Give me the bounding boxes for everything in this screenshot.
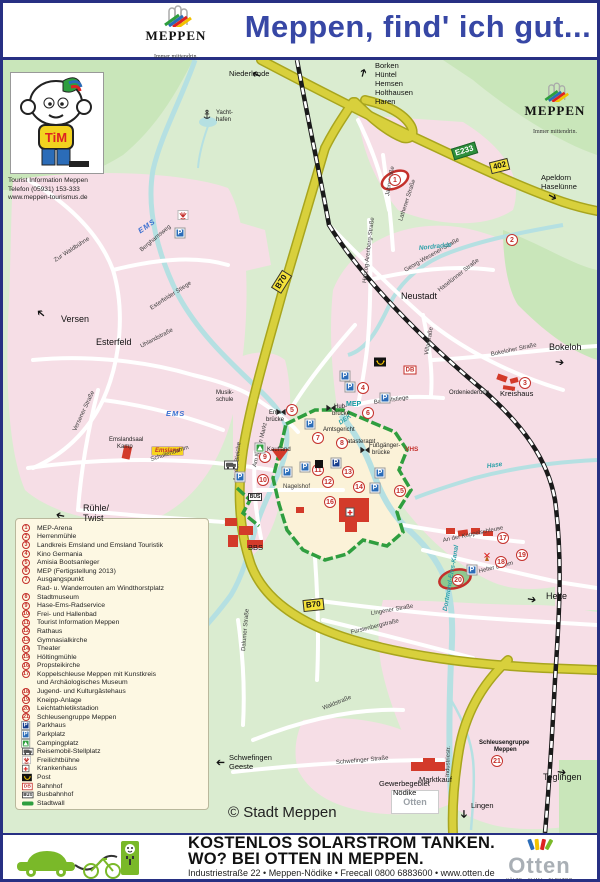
poi-marker-13[interactable]: 13 xyxy=(342,466,354,478)
legend-number-13: 13 xyxy=(22,636,30,644)
legend-item-17: 17Koppelschleuse Meppen mit Kunstkreis xyxy=(22,670,204,679)
legend-item-7: 7Ausgangspunkt xyxy=(22,576,204,585)
legend-icon-cell: 5 xyxy=(22,559,37,567)
tourist-info-line1: Tourist Information Meppen xyxy=(8,177,128,186)
map-logo-text: MEPPEN xyxy=(525,103,586,118)
map-logo-tagline: Immer mittendrin. xyxy=(533,129,577,135)
legend-icon-cell: 14 xyxy=(22,645,37,653)
legend-symbol-post: Post xyxy=(22,773,204,782)
legend-icon-cell: 3 xyxy=(22,541,37,549)
legend-icon-cell: 9 xyxy=(22,602,37,610)
map-label-hasel-nne: Haselünne xyxy=(541,183,577,191)
parkplatz-icon: P xyxy=(301,463,310,472)
map-legend: 1MEP-Arena2Herrenmühle3Landkreis Emsland… xyxy=(15,518,209,810)
map-label-meppen: Meppen xyxy=(494,747,517,753)
legend-number-20: 20 xyxy=(22,705,30,713)
map-label-bbs: BBS xyxy=(248,544,263,552)
meppen-city-map-page: MEPPEN Immer mittendrin. Meppen, find' i… xyxy=(0,0,600,882)
map-label-schleusengruppe: Schleusengruppe xyxy=(479,740,529,746)
legend-icon-cell: 12 xyxy=(22,627,37,635)
map-label-br-cke: brücke xyxy=(372,450,390,456)
poi-marker-18[interactable]: 18 xyxy=(495,556,507,568)
direction-arrow: ➔ xyxy=(556,767,567,779)
legend-item-19: 19Kneipp-Anlage xyxy=(22,696,204,705)
poi-marker-17[interactable]: 17 xyxy=(497,532,509,544)
legend-icon-cell: BUS xyxy=(22,791,37,799)
legend-item-21: 21Schleusengruppe Meppen xyxy=(22,713,204,722)
poi-marker-8[interactable]: 8 xyxy=(336,437,348,449)
poi-marker-7[interactable]: 7 xyxy=(312,432,324,444)
map-label-emslandsaal: Emslandsaal xyxy=(109,437,143,443)
bridge-icon xyxy=(276,408,287,416)
footer-text: KOSTENLOS SOLARSTROM TANKEN. WO? BEI OTT… xyxy=(188,836,495,878)
parkplatz-icon: P xyxy=(306,420,315,429)
legend-icon-cell: 10 xyxy=(22,610,37,618)
bridge-icon xyxy=(360,446,371,454)
legend-item-13: 13Gymnasialkirche xyxy=(22,636,204,645)
map-label-neustadt: Neustadt xyxy=(401,292,437,301)
map-label-bokeloh: Bokeloh xyxy=(549,343,582,352)
legend-icon-cell: 6 xyxy=(22,567,37,575)
poi-marker-3[interactable]: 3 xyxy=(519,377,531,389)
openair-icon xyxy=(178,210,189,220)
legend-item-3: 3Landkreis Emsland und Emsland Touristik xyxy=(22,541,204,550)
map-label-esterfeld: Esterfeld xyxy=(96,338,132,347)
road-badge-b70: B70 xyxy=(302,598,324,612)
map-label-hafen: hafen xyxy=(216,117,231,123)
map-label-versen: Versen xyxy=(61,315,89,324)
legend-label: Höltingmühle xyxy=(37,654,77,661)
map-label-br-cke: brücke xyxy=(266,417,284,423)
legend-icon-cell: 2 xyxy=(22,533,37,541)
tourist-info-line3[interactable]: www.meppen-tourismus.de xyxy=(8,194,128,203)
parkplatz-icon: P xyxy=(381,394,390,403)
poi-marker-2[interactable]: 2 xyxy=(506,234,518,246)
legend-symbol-parkplatz: PParkplatz xyxy=(22,730,204,739)
legend-number-8: 8 xyxy=(22,593,30,601)
map-label-n-dike: Nödike xyxy=(393,789,416,797)
legend-label: Tourist Information Meppen xyxy=(37,619,119,626)
legend-icon-cell: DB xyxy=(22,782,37,791)
legend-number-19: 19 xyxy=(22,696,30,704)
city-map: TiM Tourist Information Meppen Telefon (… xyxy=(3,60,597,835)
map-meppen-logo: MEPPEN Immer mittendrin. xyxy=(515,82,595,138)
meppen-hand-icon xyxy=(159,5,193,27)
bus-icon: BUS xyxy=(248,493,262,501)
legend-number-1: 1 xyxy=(22,524,30,532)
legend-label: MEP (Fertigstellung 2013) xyxy=(37,568,116,575)
legend-label: Schleusengruppe Meppen xyxy=(37,714,116,721)
legend-item-12: 12Rathaus xyxy=(22,627,204,636)
map-label-h-ntel: Hüntel xyxy=(375,71,397,79)
legend-label: Reisemobil-Stellplatz xyxy=(37,748,100,755)
legend-item-5: 5Amisia Bootsanleger xyxy=(22,558,204,567)
legend-label: Landkreis Emsland und Emsland Touristik xyxy=(37,542,163,549)
legend-number-4: 4 xyxy=(22,550,30,558)
legend-number-7: 7 xyxy=(22,576,30,584)
legend-label: Parkhaus xyxy=(37,722,66,729)
map-label-kaufland: Kaufland xyxy=(267,447,291,453)
parkplatz-icon: P xyxy=(341,372,350,381)
legend-item-7-cont: Rad- u. Wanderrouten am Windthorstplatz xyxy=(22,584,204,593)
legend-symbol-bus: BUSBusbahnhof xyxy=(22,790,204,799)
electric-car-icon xyxy=(9,837,179,879)
legend-label: Stadtwall xyxy=(37,800,65,807)
poi-marker-5[interactable]: 5 xyxy=(286,404,298,416)
legend-label: Campingplatz xyxy=(37,740,79,747)
legend-label: MEP-Arena xyxy=(37,525,72,532)
parkhaus-icon: P xyxy=(22,722,29,729)
legend-icon-cell: 7 xyxy=(22,576,37,584)
map-label-marktkauf: Marktkauf xyxy=(419,776,452,784)
hospital-icon xyxy=(22,765,29,772)
map-label-haren: Haren xyxy=(375,98,395,106)
direction-arrow: ➔ xyxy=(526,594,537,606)
camping-icon xyxy=(256,444,265,453)
legend-label: Stadtmuseum xyxy=(37,594,79,601)
legend-item-16: 16Propsteikirche xyxy=(22,662,204,671)
wall-icon xyxy=(22,801,33,805)
map-label-industriestr-: Industriestr. xyxy=(445,746,452,777)
legend-icon-cell: 8 xyxy=(22,593,37,601)
legend-symbol-parkhaus: PParkhaus xyxy=(22,722,204,731)
page-title: Meppen, find' ich gut... xyxy=(238,9,598,45)
legend-icon-cell: 21 xyxy=(22,713,37,721)
db-icon: DB xyxy=(404,366,417,375)
legend-icon-cell: 15 xyxy=(22,653,37,661)
map-label-helte: Helte xyxy=(546,592,567,601)
poi-marker-19[interactable]: 19 xyxy=(516,549,528,561)
hospital-icon xyxy=(346,508,355,517)
tim-character-icon: TiM xyxy=(11,73,101,171)
legend-number-5: 5 xyxy=(22,559,30,567)
parkplatz-icon: P xyxy=(236,473,245,482)
legend-label: Post xyxy=(37,774,51,781)
map-label-fu-g-nger-: Fußgänger- xyxy=(369,443,400,449)
legend-number-15: 15 xyxy=(22,653,30,661)
legend-label: Theater xyxy=(37,645,60,652)
tourist-info-text: Tourist Information Meppen Telefon (0593… xyxy=(8,177,128,203)
legend-item-11: 11Tourist Information Meppen xyxy=(22,619,204,628)
direction-arrow: ➔ xyxy=(458,810,469,819)
legend-icon-cell: 19 xyxy=(22,696,37,704)
legend-number-12: 12 xyxy=(22,627,30,635)
mill-icon xyxy=(482,552,492,562)
legend-label: Krankenhaus xyxy=(37,765,77,772)
legend-item-18: 18Jugend- und Kulturgästehaus xyxy=(22,687,204,696)
map-label-amtsgericht: Amtsgericht xyxy=(323,427,355,433)
legend-item-8: 8Stadtmuseum xyxy=(22,593,204,602)
legend-label: Ausgangspunkt xyxy=(37,576,84,583)
post-icon xyxy=(374,358,386,367)
otten-brand-tagline: KÄLTE · KLIMA · ELEKTRO xyxy=(492,877,587,882)
parkplatz-icon: P xyxy=(371,484,380,493)
footer-address[interactable]: Industriestraße 22 • Meppen-Nödike • Fre… xyxy=(188,868,495,878)
parkplatz-icon: P xyxy=(283,468,292,477)
legend-label: Busbahnhof xyxy=(37,791,73,798)
legend-item-10: 10Frei- und Hallenbad xyxy=(22,610,204,619)
legend-item-15: 15Höltingmühle xyxy=(22,653,204,662)
legend-label: Parkplatz xyxy=(37,731,65,738)
legend-label: Rathaus xyxy=(37,628,62,635)
map-label-ems: EMS xyxy=(166,410,185,418)
meppen-hand-icon xyxy=(540,82,570,102)
parkplatz-icon: P xyxy=(22,731,29,738)
legend-number-10: 10 xyxy=(22,610,30,618)
map-label-hemsen: Hemsen xyxy=(375,80,403,88)
poi-marker-14[interactable]: 14 xyxy=(353,481,365,493)
map-label-r-hle-: Rühle/ xyxy=(83,504,109,513)
meppen-logo: MEPPEN Immer mittendrin. xyxy=(131,5,221,63)
legend-symbol-rv: Reisemobil-Stellplatz xyxy=(22,747,204,756)
header: MEPPEN Immer mittendrin. Meppen, find' i… xyxy=(3,3,597,60)
legend-icon-cell: 17 xyxy=(22,670,37,678)
legend-label: Propsteikirche xyxy=(37,662,80,669)
poi-marker-10[interactable]: 10 xyxy=(257,474,269,486)
legend-label: Koppelschleuse Meppen mit Kunstkreis xyxy=(37,671,156,678)
map-label-mep: MEP xyxy=(346,401,361,408)
legend-label: Kneipp-Anlage xyxy=(37,697,82,704)
legend-icon-cell: 13 xyxy=(22,636,37,644)
legend-icon-cell: 11 xyxy=(22,619,37,627)
legend-icon-cell: 20 xyxy=(22,705,37,713)
meppen-logo-text: MEPPEN xyxy=(146,28,207,43)
anchor-icon xyxy=(203,110,212,121)
legend-label: Gymnasialkirche xyxy=(37,637,87,644)
legend-icon-cell: 18 xyxy=(22,688,37,696)
map-label-kreishaus: Kreishaus xyxy=(500,390,533,398)
legend-label: Bahnhof xyxy=(37,783,62,790)
civic-icon xyxy=(315,460,323,468)
tourist-info-line2: Telefon (05931) 153-333 xyxy=(8,186,128,195)
bus-icon: BUS xyxy=(22,791,33,798)
legend-item-20: 20Leichtathletikstadion xyxy=(22,704,204,713)
map-label-yacht-: Yacht- xyxy=(216,110,233,116)
poi-marker-6[interactable]: 6 xyxy=(362,407,374,419)
poi-marker-4[interactable]: 4 xyxy=(357,382,369,394)
map-label-borken: Borken xyxy=(375,62,399,70)
legend-item-9: 9Hase-Ems-Radservice xyxy=(22,601,204,610)
legend-item-14: 14Theater xyxy=(22,644,204,653)
legend-label: Herrenmühle xyxy=(37,533,76,540)
map-label-apeldorn: Apeldorn xyxy=(541,174,571,182)
openair-icon xyxy=(22,756,31,764)
direction-arrow: ➔ xyxy=(216,756,225,767)
legend-label: und Archäologisches Museum xyxy=(37,679,128,686)
post-icon xyxy=(22,774,32,781)
otten-logo: Otten KÄLTE · KLIMA · ELEKTRO xyxy=(492,837,587,882)
legend-icon-cell xyxy=(22,801,37,806)
legend-symbol-hospital: Krankenhaus xyxy=(22,765,204,774)
parkplatz-icon: P xyxy=(468,566,477,575)
poi-marker-1[interactable]: 1 xyxy=(389,174,401,186)
map-label-geeste: Geeste xyxy=(229,763,253,771)
map-label-nagelshof: Nagelshof xyxy=(283,484,310,490)
map-copyright: © Stadt Meppen xyxy=(228,804,337,821)
parkplatz-icon: P xyxy=(176,229,185,238)
map-label-lingen: Lingen xyxy=(471,802,494,810)
map-label-kamp: Kamp xyxy=(117,444,133,450)
legend-symbol-db: DBBahnhof xyxy=(22,782,204,791)
db-icon: DB xyxy=(22,782,33,789)
poi-marker-16[interactable]: 16 xyxy=(324,496,336,508)
legend-label: Rad- u. Wanderrouten am Windthorstplatz xyxy=(37,585,164,592)
footer-headline-2: WO? BEI OTTEN IN MEPPEN. xyxy=(188,852,495,868)
legend-icon-cell: 16 xyxy=(22,662,37,670)
map-label-holthausen: Holthausen xyxy=(375,89,413,97)
legend-number-3: 3 xyxy=(22,541,30,549)
legend-number-17: 17 xyxy=(22,670,30,678)
parkplatz-icon: P xyxy=(346,383,355,392)
map-label-schwefingen: Schwefingen xyxy=(229,754,272,762)
camping-icon xyxy=(22,739,29,746)
legend-number-9: 9 xyxy=(22,602,30,610)
tourist-info-box: TiM xyxy=(10,72,104,174)
legend-label: Hase-Ems-Radservice xyxy=(37,602,105,609)
legend-number-16: 16 xyxy=(22,662,30,670)
poi-marker-9[interactable]: 9 xyxy=(259,451,271,463)
poi-marker-21[interactable]: 21 xyxy=(491,755,503,767)
legend-label: Kino Germania xyxy=(37,551,82,558)
parkplatz-icon: P xyxy=(376,469,385,478)
legend-item-2: 2Herrenmühle xyxy=(22,533,204,542)
legend-item-4: 4Kino Germania xyxy=(22,550,204,559)
legend-symbol-wall: Stadtwall xyxy=(22,799,204,808)
legend-item-6: 6MEP (Fertigstellung 2013) xyxy=(22,567,204,576)
svg-text:TiM: TiM xyxy=(45,130,67,145)
footer-ad-banner: KOSTENLOS SOLARSTROM TANKEN. WO? BEI OTT… xyxy=(3,835,597,880)
map-label-schule: schule xyxy=(216,397,233,403)
legend-label: Frei- und Hallenbad xyxy=(37,611,97,618)
legend-label: Amisia Bootsanleger xyxy=(37,559,99,566)
legend-number-18: 18 xyxy=(22,688,30,696)
legend-item-17-cont: und Archäologisches Museum xyxy=(22,679,204,688)
rv-icon xyxy=(22,748,33,755)
legend-label: Jugend- und Kulturgästehaus xyxy=(37,688,126,695)
poi-marker-15[interactable]: 15 xyxy=(394,485,406,497)
legend-number-2: 2 xyxy=(22,533,30,541)
map-label-musik-: Musik- xyxy=(216,390,234,396)
poi-marker-20[interactable]: 20 xyxy=(452,574,464,586)
legend-symbol-camping: Campingplatz xyxy=(22,739,204,748)
map-label-vhs: VHS xyxy=(405,447,418,454)
map-label-twist: Twist xyxy=(83,514,104,523)
poi-marker-12[interactable]: 12 xyxy=(322,476,334,488)
legend-label: Freilichtbühne xyxy=(37,757,80,764)
map-label-ordeniederung: Ordeniederung xyxy=(449,390,489,396)
parkhaus-icon: P xyxy=(332,459,341,468)
legend-icon-cell: 4 xyxy=(22,550,37,558)
otten-brand-word: Otten xyxy=(492,855,587,877)
legend-symbol-openair: Freilichtbühne xyxy=(22,756,204,765)
legend-number-6: 6 xyxy=(22,567,30,575)
direction-arrow: ➔ xyxy=(554,357,565,369)
legend-number-21: 21 xyxy=(22,713,30,721)
rv-icon xyxy=(224,461,238,470)
legend-label: Leichtathletikstadion xyxy=(37,705,99,712)
legend-item-1: 1MEP-Arena xyxy=(22,524,204,533)
legend-number-14: 14 xyxy=(22,645,30,653)
legend-icon-cell: 1 xyxy=(22,524,37,532)
bridge-icon xyxy=(326,404,337,412)
legend-number-11: 11 xyxy=(22,619,30,627)
